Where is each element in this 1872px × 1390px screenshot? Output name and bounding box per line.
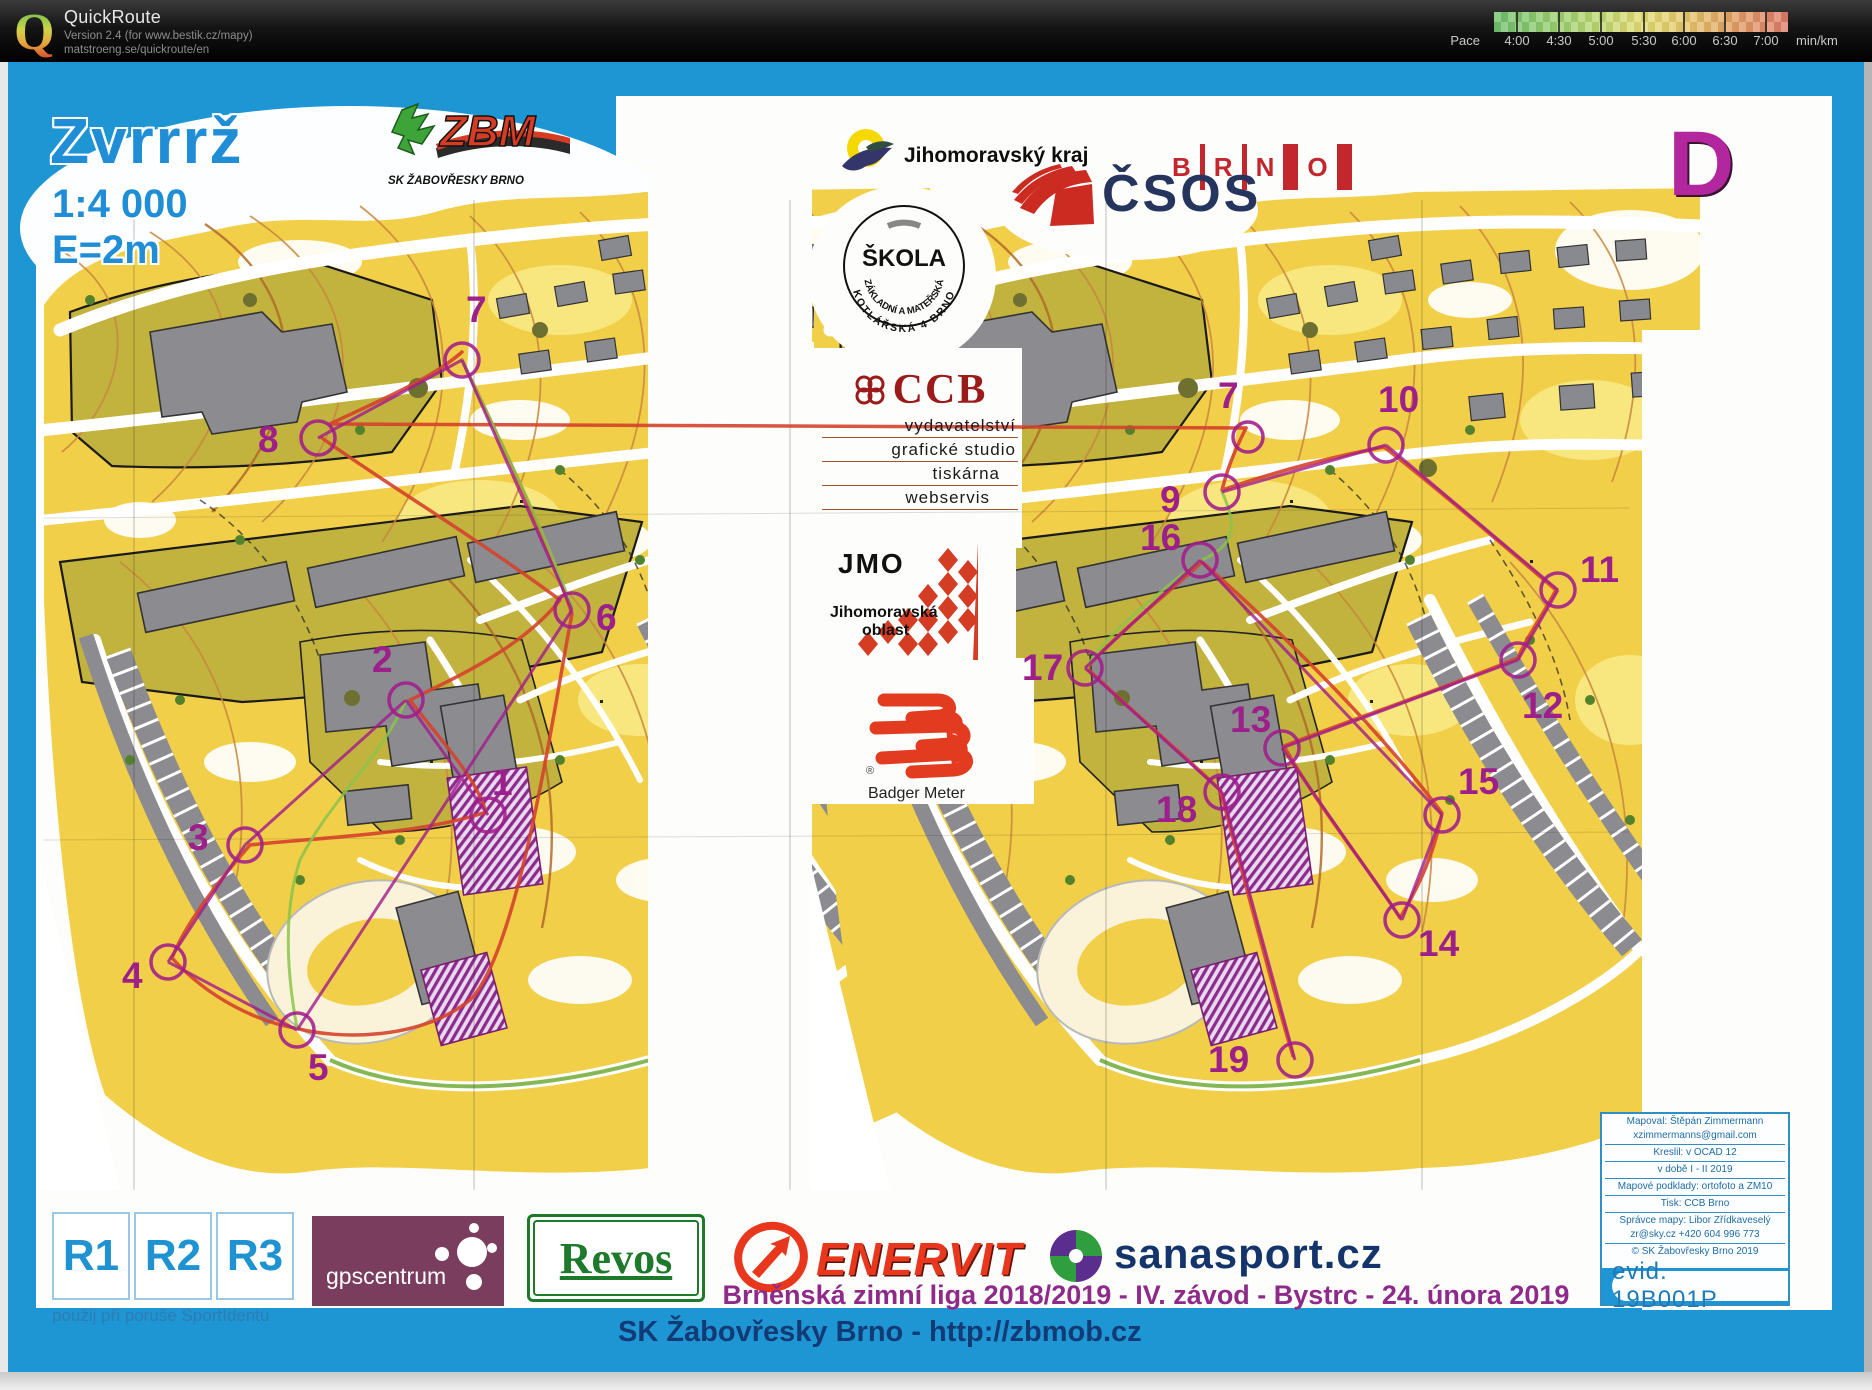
zbm-logo: ZBM SK ŽABOVŘESKY BRNO bbox=[388, 102, 573, 202]
pace-tick: 6:00 bbox=[1662, 33, 1706, 48]
credit-line: Kreslil: v OCAD 12 bbox=[1602, 1145, 1788, 1161]
pace-tick: 5:30 bbox=[1622, 33, 1666, 48]
gpscentrum-logo: gpscentrum bbox=[312, 1216, 504, 1306]
ccb-line: grafické studio bbox=[822, 438, 1018, 462]
quickroute-window: Q QuickRoute Version 2.4 (for www.bestik… bbox=[0, 0, 1872, 1390]
control-number: 15 bbox=[1458, 761, 1499, 802]
control-number: 13 bbox=[1230, 699, 1271, 740]
r2-box: R2 bbox=[134, 1212, 212, 1300]
sanasport-pinwheel-icon bbox=[1048, 1228, 1104, 1284]
jmo-caption-1: Jihomoravská bbox=[830, 604, 938, 621]
scan-edge bbox=[0, 1372, 1872, 1390]
app-header: Q QuickRoute Version 2.4 (for www.bestik… bbox=[0, 0, 1872, 62]
control-number: 1 bbox=[492, 762, 513, 803]
control-number: 9 bbox=[1160, 479, 1181, 520]
pace-legend-label: Pace bbox=[1420, 33, 1480, 48]
zbm-caption: SK ŽABOVŘESKY BRNO bbox=[388, 175, 573, 187]
evid-number: evid. 19B001P bbox=[1612, 1258, 1780, 1314]
ccb-line: vydavatelství bbox=[822, 414, 1018, 438]
control-number: 2 bbox=[372, 639, 393, 680]
revos-label: Revos bbox=[560, 1233, 672, 1284]
evid-band: evid. 19B001P bbox=[1602, 1268, 1788, 1304]
pace-tick: 6:30 bbox=[1703, 33, 1747, 48]
badger-meter-logo: ® Badger Meter bbox=[852, 688, 1012, 810]
pace-tick: 7:00 bbox=[1744, 33, 1788, 48]
pace-tick: 4:00 bbox=[1495, 33, 1539, 48]
control-number: 17 bbox=[1022, 647, 1063, 688]
brno-bar-icon bbox=[1337, 144, 1352, 190]
r3-box: R3 bbox=[216, 1212, 294, 1300]
csos-logo: ČSOS bbox=[1010, 158, 1250, 234]
zbm-figure-icon: ZBM bbox=[388, 102, 573, 174]
quickroute-logo-icon: Q bbox=[12, 5, 58, 59]
pace-unit-label: min/km bbox=[1796, 33, 1838, 48]
skola-center-text: ŠKOLA bbox=[862, 244, 946, 272]
jmo-label: JMO bbox=[838, 548, 905, 580]
control-number: 3 bbox=[188, 817, 209, 858]
badger-b-icon: ® bbox=[852, 688, 1002, 780]
svg-text:ZBM: ZBM bbox=[438, 107, 537, 156]
badger-meter-label: Badger Meter bbox=[868, 785, 1012, 803]
control-number-extra: 7 bbox=[1218, 375, 1239, 416]
control-number: 19 bbox=[1208, 1039, 1249, 1080]
badger-reg-mark: ® bbox=[866, 765, 874, 777]
club-footer-line: SK Žabovřesky Brno - http://zbmob.cz bbox=[618, 1316, 1142, 1349]
r123-panel: R1 R2 R3 použij při poruše SportIdentu bbox=[52, 1212, 312, 1332]
ccb-label: CCB bbox=[893, 366, 988, 414]
credit-line: zr@sky.cz +420 604 996 773 bbox=[1602, 1229, 1788, 1243]
control-number: 7 bbox=[466, 289, 487, 330]
r1-box: R1 bbox=[52, 1212, 130, 1300]
course-letter: D bbox=[1668, 112, 1734, 217]
control-number: 16 bbox=[1140, 517, 1181, 558]
map-scale: 1:4 000 bbox=[52, 182, 188, 227]
control-number: 11 bbox=[1580, 549, 1619, 590]
r123-caption: použij při poruše SportIdentu bbox=[52, 1306, 312, 1326]
control-number: 6 bbox=[596, 597, 617, 638]
sanasport-label: sanasport.cz bbox=[1114, 1230, 1383, 1278]
brno-letter: O bbox=[1307, 152, 1327, 183]
ccb-line: tiskárna bbox=[822, 462, 1018, 486]
control-number: 18 bbox=[1156, 789, 1197, 830]
pace-tick: 5:00 bbox=[1579, 33, 1623, 48]
event-title-line: Brněnská zimní liga 2018/2019 - IV. závo… bbox=[646, 1280, 1646, 1311]
gpscentrum-label: gpscentrum bbox=[326, 1263, 446, 1290]
svg-text:Q: Q bbox=[14, 5, 54, 59]
control-number: 8 bbox=[258, 419, 279, 460]
ccb-line: webservis bbox=[822, 486, 1018, 510]
credit-line: Mapoval: Štěpán Zimmermann bbox=[1602, 1114, 1788, 1130]
credit-line: Mapové podklady: ortofoto a ZM10 bbox=[1602, 1179, 1788, 1195]
brno-bar-icon bbox=[1283, 144, 1298, 190]
map-credits-box: Mapoval: Štěpán Zimmermann xzimmermanns@… bbox=[1600, 1112, 1790, 1306]
pace-gradient-bar bbox=[1494, 12, 1788, 32]
control-number: 12 bbox=[1522, 685, 1563, 726]
control-number: 5 bbox=[308, 1047, 329, 1088]
jmo-logo: JMO Jihomoravská oblast bbox=[828, 542, 1008, 664]
csos-label: ČSOS bbox=[1102, 164, 1261, 224]
control-number: 14 bbox=[1418, 923, 1460, 964]
credit-line: v době I - II 2019 bbox=[1602, 1162, 1788, 1178]
ccb-clover-icon bbox=[853, 373, 887, 407]
control-number: 4 bbox=[122, 955, 143, 996]
enervit-label: ENERVIT bbox=[816, 1232, 1022, 1286]
app-title: QuickRoute bbox=[64, 7, 161, 28]
ccb-logo: CCB vydavatelství grafické studio tiskár… bbox=[822, 366, 1018, 526]
jihomoravsky-kraj-sun-icon bbox=[836, 122, 898, 184]
credit-line: Tisk: CCB Brno bbox=[1602, 1196, 1788, 1212]
control-number: 10 bbox=[1378, 379, 1419, 420]
pace-tick: 4:30 bbox=[1537, 33, 1581, 48]
csos-stripes-icon bbox=[1010, 162, 1094, 230]
map-title: Zvrrrž bbox=[50, 104, 243, 178]
map-equidistance: E=2m bbox=[52, 228, 160, 273]
app-version: Version 2.4 (for www.bestik.cz/mapy) bbox=[64, 30, 253, 42]
credit-line: xzimmermanns@gmail.com bbox=[1602, 1130, 1788, 1144]
app-url: matstroeng.se/quickroute/en bbox=[64, 44, 209, 56]
credit-line: Správce mapy: Libor Zřídkaveselý bbox=[1602, 1213, 1788, 1229]
skola-stamp-logo: ŠKOLA ZÁKLADNÍ A MATEŘSKÁ KOTLÁŘSKÁ 4 BR… bbox=[836, 198, 972, 334]
jmo-caption-2: oblast bbox=[862, 622, 909, 639]
